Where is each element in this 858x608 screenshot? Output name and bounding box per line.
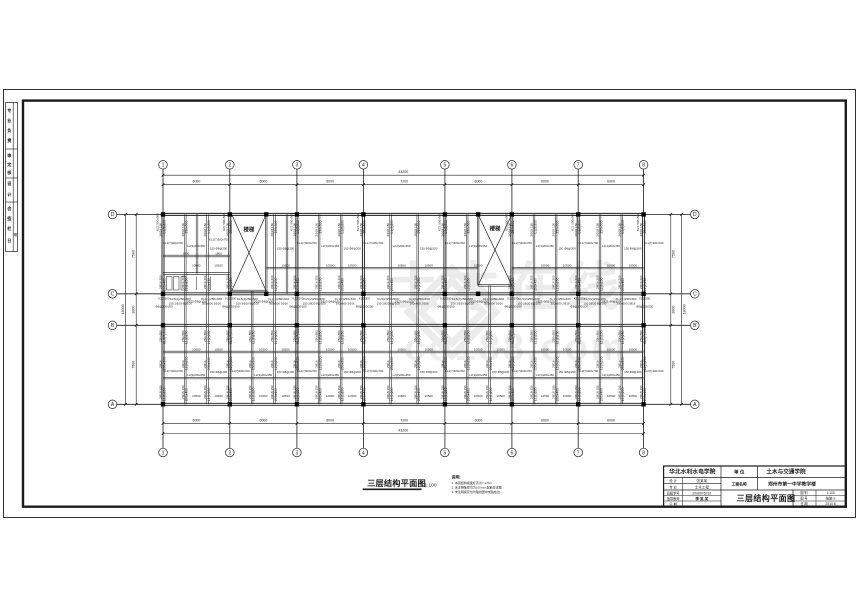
svg-text:Φ8@100/200: Φ8@100/200	[289, 305, 307, 309]
svg-text:10500: 10500	[425, 264, 434, 268]
svg-text:华北水利水电学院: 华北水利水电学院	[669, 468, 716, 476]
svg-text:2. 未注明板厚均为100mm,配筋见详图.: 2. 未注明板厚均为100mm,配筋见详图.	[452, 485, 503, 490]
svg-text:co188.com: co188.com	[404, 327, 627, 369]
svg-text:KL1(7)300x700: KL1(7)300x700	[578, 241, 598, 245]
svg-text:10500: 10500	[563, 394, 572, 398]
svg-text:250x550: 250x550	[596, 330, 600, 342]
svg-text:L2(3)200x450: L2(3)200x450	[469, 373, 487, 377]
svg-text:楼梯: 楼梯	[244, 226, 255, 234]
svg-text:200x450: 200x450	[621, 278, 625, 291]
svg-text:L1(1)200: L1(1)200	[533, 387, 537, 401]
svg-text:2Φ16 200: 2Φ16 200	[639, 275, 643, 289]
svg-text:2Φ18 150: 2Φ18 150	[159, 385, 163, 399]
svg-text:2Φ18 150: 2Φ18 150	[485, 385, 489, 399]
svg-text:2Φ18 150: 2Φ18 150	[386, 223, 390, 237]
svg-text:150 Φ8@200: 150 Φ8@200	[492, 370, 510, 374]
svg-text:KL3(7)300: KL3(7)300	[578, 328, 582, 344]
svg-text:KL2(7)300x700: KL2(7)300x700	[364, 369, 384, 373]
svg-text:L1(1)200: L1(1)200	[252, 387, 256, 401]
svg-text:Φ8@100/200: Φ8@100/200	[437, 305, 455, 309]
svg-text:7: 7	[577, 450, 580, 456]
svg-text:150 Φ8@200: 150 Φ8@200	[420, 370, 438, 374]
svg-text:250x550: 250x550	[225, 330, 229, 342]
svg-text:6: 6	[511, 163, 514, 169]
svg-text:2Φ18 150: 2Φ18 150	[617, 385, 621, 399]
svg-text:L1(2)200: L1(2)200	[533, 220, 537, 234]
svg-text:L2(3)200x450: L2(3)200x450	[536, 373, 554, 377]
svg-text:4: 4	[362, 450, 365, 456]
svg-text:250x550: 250x550	[359, 330, 363, 342]
svg-text:KL3(7)300: KL3(7)300	[444, 328, 448, 344]
svg-text:250x550: 250x550	[315, 330, 319, 342]
svg-text:250x500: 250x500	[643, 220, 647, 233]
svg-text:250x550: 250x550	[574, 330, 578, 342]
svg-text:KL3(7)300: KL3(7)300	[296, 328, 300, 344]
svg-text:D: D	[693, 212, 697, 218]
svg-text:班级学号: 班级学号	[667, 490, 680, 495]
svg-text:250x500: 250x500	[207, 357, 211, 370]
svg-text:土木工程: 土木工程	[695, 484, 710, 489]
svg-text:专: 专	[7, 107, 11, 114]
svg-text:2Φ16 200: 2Φ16 200	[225, 275, 229, 289]
svg-text:250x550: 250x550	[639, 330, 643, 342]
svg-text:2Φ16: 2Φ16	[315, 360, 319, 368]
svg-text:L1(2)250: L1(2)250	[555, 330, 559, 344]
svg-text:2Φ25 Φ8@100: 2Φ25 Φ8@100	[321, 299, 340, 303]
svg-text:2Φ18 150: 2Φ18 150	[270, 223, 274, 237]
svg-text:1. 本层结构板面标高为7.170m.: 1. 本层结构板面标高为7.170m.	[452, 480, 493, 485]
svg-text:10500: 10500	[326, 348, 335, 352]
svg-text:250x550: 250x550	[248, 330, 252, 342]
svg-text:150 Φ8@200: 150 Φ8@200	[344, 246, 362, 250]
svg-text:10500: 10500	[192, 348, 201, 352]
svg-text:10500: 10500	[348, 348, 357, 352]
svg-text:6000: 6000	[326, 418, 334, 422]
svg-text:6000: 6000	[541, 180, 549, 184]
svg-text:李 某 某: 李 某 某	[694, 496, 708, 501]
svg-text:1400: 1400	[183, 252, 190, 256]
svg-text:10500: 10500	[348, 264, 357, 268]
svg-text:2Φ16: 2Φ16	[248, 360, 252, 368]
svg-text:150 Φ8@200: 150 Φ8@200	[558, 246, 576, 250]
svg-text:L1(2)250: L1(2)250	[467, 330, 471, 344]
svg-text:KL2(7)300x700: KL2(7)300x700	[512, 369, 532, 373]
svg-text:10500: 10500	[607, 264, 616, 268]
svg-text:2Φ18 150: 2Φ18 150	[463, 223, 467, 237]
svg-text:2Φ16 200: 2Φ16 200	[337, 275, 341, 289]
svg-text:6000: 6000	[607, 180, 615, 184]
svg-text:7500: 7500	[672, 361, 676, 369]
svg-text:2Φ18 150: 2Φ18 150	[203, 223, 207, 237]
svg-text:L2(3)200x450: L2(3)200x450	[602, 244, 620, 248]
svg-text:10500: 10500	[397, 264, 406, 268]
svg-text:签: 签	[6, 215, 12, 222]
svg-text:250x550: 250x550	[441, 330, 445, 342]
svg-text:250x500: 250x500	[229, 220, 233, 233]
svg-text:5: 5	[444, 450, 447, 456]
svg-text:3000: 3000	[672, 306, 676, 314]
svg-text:2Φ16: 2Φ16	[552, 360, 556, 368]
svg-text:L2(2)250: L2(2)250	[467, 277, 471, 291]
svg-text:2Φ25 Φ8@100: 2Φ25 Φ8@100	[187, 299, 206, 303]
svg-text:10500: 10500	[629, 348, 638, 352]
svg-text:150 Φ8@200: 150 Φ8@200	[558, 370, 576, 374]
svg-text:250x500: 250x500	[390, 357, 394, 370]
svg-text:8: 8	[642, 163, 645, 169]
svg-text:L2(3)200: L2(3)200	[185, 356, 189, 370]
svg-text:2Φ16: 2Φ16	[203, 360, 207, 368]
svg-text:2Φ16: 2Φ16	[386, 360, 390, 368]
svg-text:200x400: 200x400	[229, 388, 233, 401]
svg-text:2Φ18 150: 2Φ18 150	[441, 385, 445, 399]
svg-text:10500: 10500	[281, 394, 290, 398]
svg-text:KZ1 500x500: KZ1 500x500	[571, 213, 575, 231]
svg-text:7: 7	[577, 163, 580, 169]
svg-text:L2(2)250: L2(2)250	[555, 277, 559, 291]
svg-text:KL1(7)300x700: KL1(7)300x700	[512, 241, 532, 245]
svg-text:250x550: 250x550	[337, 330, 341, 342]
svg-text:250x550: 250x550	[530, 330, 534, 342]
svg-text:150 Φ8@200: 150 Φ8@200	[624, 246, 642, 250]
svg-text:10500: 10500	[496, 348, 505, 352]
svg-text:KL3(7)300: KL3(7)300	[162, 328, 166, 344]
svg-text:审: 审	[7, 152, 11, 159]
svg-text:日 期: 日 期	[800, 501, 807, 506]
svg-text:18000: 18000	[682, 304, 686, 314]
svg-text:L2(2)250: L2(2)250	[511, 277, 515, 291]
svg-text:2: 2	[228, 450, 231, 456]
svg-text:L2(3)200: L2(3)200	[318, 356, 322, 370]
svg-text:L2(3)200x450: L2(3)200x450	[321, 373, 339, 377]
svg-text:KL1(7)300x700: KL1(7)300x700	[644, 241, 664, 245]
svg-text:6000: 6000	[475, 180, 483, 184]
svg-text:D: D	[111, 212, 115, 218]
svg-text:10500: 10500	[281, 348, 290, 352]
svg-text:250x550: 250x550	[552, 330, 556, 342]
svg-text:Φ8@100/200: Φ8@100/200	[504, 305, 522, 309]
svg-text:2Φ16 200: 2Φ16 200	[413, 275, 417, 289]
svg-text:2Φ16: 2Φ16	[413, 360, 417, 368]
svg-text:200x450: 200x450	[444, 278, 448, 291]
svg-text:1800: 1800	[215, 252, 222, 256]
svg-text:7200: 7200	[400, 180, 408, 184]
svg-text:工程名称: 工程名称	[732, 481, 747, 486]
svg-text:L2(2)250: L2(2)250	[185, 277, 189, 291]
svg-text:250x500: 250x500	[467, 220, 471, 233]
svg-text:2Φ18 150: 2Φ18 150	[552, 223, 556, 237]
svg-text:Φ8@100/200: Φ8@100/200	[155, 305, 173, 309]
svg-text:10500: 10500	[214, 394, 223, 398]
svg-text:L2(2)250: L2(2)250	[229, 277, 233, 291]
svg-text:2Φ18 150: 2Φ18 150	[530, 223, 534, 237]
svg-text:10500: 10500	[214, 264, 223, 268]
svg-text:KZ2 500: KZ2 500	[574, 296, 585, 300]
svg-text:KZ1 500x500: KZ1 500x500	[356, 213, 360, 231]
svg-text:10500: 10500	[541, 394, 550, 398]
svg-text:L1(2)250: L1(2)250	[318, 330, 322, 344]
svg-text:KZ2 500: KZ2 500	[639, 296, 650, 300]
svg-text:3000: 3000	[131, 306, 135, 314]
svg-text:三层结构平面图: 三层结构平面图	[737, 493, 796, 503]
svg-text:6000: 6000	[607, 418, 615, 422]
svg-text:250x550: 250x550	[463, 330, 467, 342]
svg-text:L2(3)200: L2(3)200	[599, 356, 603, 370]
svg-text:10500: 10500	[607, 394, 616, 398]
svg-text:2Φ16: 2Φ16	[293, 360, 297, 368]
svg-text:L2(3)200x450: L2(3)200x450	[393, 244, 411, 248]
svg-text:200x400: 200x400	[599, 388, 603, 401]
svg-text:7200: 7200	[400, 418, 408, 422]
svg-text:2Φ18 150: 2Φ18 150	[248, 385, 252, 399]
svg-text:10500: 10500	[397, 348, 406, 352]
svg-text:L1(2)250: L1(2)250	[417, 330, 421, 344]
svg-text:250x500: 250x500	[489, 357, 493, 370]
svg-text:2Φ16: 2Φ16	[508, 360, 512, 368]
svg-text:KL1(7)300x700: KL1(7)300x700	[297, 241, 317, 245]
svg-text:L1(1)200: L1(1)200	[162, 387, 166, 401]
svg-text:200x450: 200x450	[578, 278, 582, 291]
svg-text:250x550: 250x550	[508, 330, 512, 342]
svg-text:2Φ16: 2Φ16	[359, 360, 363, 368]
svg-text:日: 日	[7, 237, 11, 244]
svg-text:6000: 6000	[193, 180, 201, 184]
svg-text:三层结构平面图: 三层结构平面图	[367, 478, 426, 488]
svg-text:KL2(7)300x700: KL2(7)300x700	[578, 369, 598, 373]
svg-text:200x400: 200x400	[511, 388, 515, 401]
svg-text:张某某: 张某某	[696, 478, 707, 483]
svg-text:1: 1	[162, 450, 165, 456]
svg-text:150 Φ8@200: 150 Φ8@200	[210, 246, 228, 250]
svg-text:L1(1)200: L1(1)200	[341, 387, 345, 401]
svg-text:2Φ16: 2Φ16	[617, 360, 621, 368]
svg-text:2Φ16: 2Φ16	[270, 360, 274, 368]
svg-text:L2(3)200: L2(3)200	[643, 356, 647, 370]
svg-text:10500: 10500	[607, 348, 616, 352]
svg-text:200x400: 200x400	[274, 388, 278, 401]
svg-text:KL2(7)300x700: KL2(7)300x700	[297, 369, 317, 373]
svg-text:10500: 10500	[474, 394, 483, 398]
svg-text:2Φ16 200: 2Φ16 200	[315, 275, 319, 289]
svg-text:10500: 10500	[541, 264, 550, 268]
svg-text:L1(2)250: L1(2)250	[599, 330, 603, 344]
svg-text:L1(2)250: L1(2)250	[252, 330, 256, 344]
svg-text:1: 1	[162, 163, 165, 169]
svg-text:2Φ18 150: 2Φ18 150	[463, 385, 467, 399]
svg-text:2Φ16 200: 2Φ16 200	[359, 275, 363, 289]
svg-text:KZ1 500x500: KZ1 500x500	[222, 213, 226, 231]
svg-text:2Φ18 150: 2Φ18 150	[596, 385, 600, 399]
svg-text:200x400: 200x400	[467, 388, 471, 401]
svg-text:L2(3)200: L2(3)200	[555, 356, 559, 370]
svg-text:2Φ16: 2Φ16	[181, 360, 185, 368]
svg-text:2Φ25 Φ8@100: 2Φ25 Φ8@100	[254, 299, 273, 303]
svg-text:250x500: 250x500	[252, 357, 256, 370]
svg-text:2Φ18 150: 2Φ18 150	[315, 223, 319, 237]
svg-text:250x550: 250x550	[386, 330, 390, 342]
svg-text:KL3(7)300: KL3(7)300	[363, 328, 367, 344]
svg-text:10500: 10500	[563, 264, 572, 268]
svg-text:L1(1)200: L1(1)200	[390, 387, 394, 401]
svg-text:2Φ16 200: 2Φ16 200	[441, 275, 445, 289]
svg-text:L2(3)200: L2(3)200	[363, 356, 367, 370]
svg-text:2Φ18 150: 2Φ18 150	[574, 385, 578, 399]
svg-text:L1(2)250: L1(2)250	[341, 330, 345, 344]
svg-text:2Φ18 150: 2Φ18 150	[508, 385, 512, 399]
svg-text:L1(2)200: L1(2)200	[207, 220, 211, 234]
svg-text:250x550: 250x550	[293, 330, 297, 342]
svg-text:L1(2)200: L1(2)200	[390, 220, 394, 234]
svg-text:2Φ16 200: 2Φ16 200	[181, 275, 185, 289]
svg-text:2Φ18 150: 2Φ18 150	[413, 223, 417, 237]
svg-text:L1(2)250: L1(2)250	[489, 330, 493, 344]
svg-text:负: 负	[7, 127, 11, 134]
svg-text:日 期: 日 期	[669, 502, 677, 507]
svg-text:200x450: 200x450	[162, 278, 166, 291]
svg-text:5: 5	[444, 163, 447, 169]
svg-text:2Φ18 150: 2Φ18 150	[639, 385, 643, 399]
svg-text:2Φ16: 2Φ16	[159, 360, 163, 368]
svg-text:6000: 6000	[541, 418, 549, 422]
svg-text:2Φ16: 2Φ16	[225, 360, 229, 368]
svg-text:L2(3)200x450: L2(3)200x450	[602, 373, 620, 377]
svg-text:Φ8@100/200: Φ8@100/200	[571, 305, 589, 309]
svg-text:L1(2)200: L1(2)200	[162, 220, 166, 234]
svg-text:2Φ18 150: 2Φ18 150	[530, 385, 534, 399]
svg-text:L1(2)250: L1(2)250	[621, 330, 625, 344]
svg-text:KZ2 500: KZ2 500	[507, 296, 518, 300]
svg-text:KL1(7)300x700: KL1(7)300x700	[364, 241, 384, 245]
svg-text:图 号: 图 号	[800, 496, 807, 501]
svg-text:L2(2)250: L2(2)250	[318, 277, 322, 291]
svg-text:250x550: 250x550	[159, 330, 163, 342]
svg-text:150 Φ8@200: 150 Φ8@200	[420, 246, 438, 250]
svg-text:10500: 10500	[629, 264, 638, 268]
svg-text:3: 3	[296, 450, 299, 456]
svg-text:2Φ16: 2Φ16	[337, 360, 341, 368]
svg-text:250x500: 250x500	[533, 357, 537, 370]
svg-text:6: 6	[511, 450, 514, 456]
svg-text:2Φ16 200: 2Φ16 200	[508, 275, 512, 289]
svg-text:L2(3)200: L2(3)200	[229, 356, 233, 370]
svg-text:KL3(7)300: KL3(7)300	[511, 328, 515, 344]
svg-text:2Φ18 150: 2Φ18 150	[203, 385, 207, 399]
svg-text:2Φ16: 2Φ16	[485, 360, 489, 368]
svg-text:10500: 10500	[425, 394, 434, 398]
svg-text:6000: 6000	[260, 180, 268, 184]
svg-text:单 位: 单 位	[734, 469, 745, 476]
svg-text:L2(3)200x450: L2(3)200x450	[393, 373, 411, 377]
svg-text:2Φ18 150: 2Φ18 150	[359, 385, 363, 399]
svg-text:250x500: 250x500	[621, 357, 625, 370]
svg-text:2Φ18 150: 2Φ18 150	[386, 385, 390, 399]
svg-text:L1(2)250: L1(2)250	[390, 330, 394, 344]
svg-text:250x500: 250x500	[318, 220, 322, 233]
svg-text:200x450: 200x450	[207, 278, 211, 291]
svg-text:10500: 10500	[397, 394, 406, 398]
svg-text:L2(3)200: L2(3)200	[511, 356, 515, 370]
svg-text:KZ1 500x500: KZ1 500x500	[437, 213, 441, 231]
svg-text:L2(2)250: L2(2)250	[363, 277, 367, 291]
svg-text:KZ2 500: KZ2 500	[159, 296, 170, 300]
svg-text:2Φ18 150: 2Φ18 150	[596, 223, 600, 237]
svg-text:Φ8@100/200: Φ8@100/200	[356, 305, 374, 309]
svg-text:2Φ16: 2Φ16	[441, 360, 445, 368]
svg-text:定: 定	[6, 161, 12, 168]
svg-text:7500: 7500	[672, 250, 676, 258]
svg-text:200x450: 200x450	[390, 278, 394, 291]
svg-text:250x500: 250x500	[341, 357, 345, 370]
svg-text:18000: 18000	[121, 304, 125, 314]
svg-text:KL2(7)300x700: KL2(7)300x700	[445, 369, 465, 373]
svg-text:C: C	[111, 292, 115, 298]
svg-text:结施-3: 结施-3	[826, 496, 836, 501]
svg-text:L2(3)200x450: L2(3)200x450	[187, 244, 205, 248]
svg-text:L2(3)200: L2(3)200	[274, 356, 278, 370]
svg-text:楼梯: 楼梯	[490, 225, 501, 233]
svg-text:250x500: 250x500	[274, 220, 278, 233]
svg-text:250x500: 250x500	[555, 220, 559, 233]
svg-text:KZ2 500: KZ2 500	[225, 296, 236, 300]
svg-text:2Φ16 200: 2Φ16 200	[574, 275, 578, 289]
svg-text:250x550: 250x550	[203, 330, 207, 342]
svg-text:2Φ25 Φ8@100: 2Φ25 Φ8@100	[536, 299, 555, 303]
svg-text:150 Φ8@200: 150 Φ8@200	[277, 370, 295, 374]
svg-text:L2(3)200x450: L2(3)200x450	[469, 244, 487, 248]
svg-text:2Φ16 200: 2Φ16 200	[463, 275, 467, 289]
svg-text:KL2(7)300x700: KL2(7)300x700	[644, 369, 664, 373]
svg-text:L2(2)250: L2(2)250	[417, 277, 421, 291]
svg-text:2Φ16 200: 2Φ16 200	[203, 275, 207, 289]
svg-text:10500: 10500	[326, 264, 335, 268]
svg-text:专 业: 专 业	[669, 484, 677, 489]
svg-text:10500: 10500	[192, 394, 201, 398]
svg-text:L1(2)250: L1(2)250	[207, 330, 211, 344]
svg-text:2Φ16 200: 2Φ16 200	[293, 275, 297, 289]
svg-text:10500: 10500	[214, 348, 223, 352]
svg-text:2Φ18 150: 2Φ18 150	[337, 223, 341, 237]
svg-text:L1(2)250: L1(2)250	[274, 330, 278, 344]
svg-text:L1(1)200: L1(1)200	[296, 387, 300, 401]
svg-text:10500: 10500	[496, 394, 505, 398]
svg-text:10500: 10500	[259, 348, 268, 352]
svg-text:150 Φ8@200: 150 Φ8@200	[344, 370, 362, 374]
svg-text:L1(1)200: L1(1)200	[444, 387, 448, 401]
svg-text:200x450: 200x450	[341, 278, 345, 291]
svg-text:200x450: 200x450	[533, 278, 537, 291]
svg-text:2: 2	[228, 163, 231, 169]
svg-text:2Φ18 150: 2Φ18 150	[413, 385, 417, 399]
svg-text:2010.6: 2010.6	[825, 502, 835, 506]
svg-text:200x400: 200x400	[417, 388, 421, 401]
svg-text:250x500: 250x500	[417, 220, 421, 233]
svg-text:3. 未注明梁定位均轴线居中或贴柱边.: 3. 未注明梁定位均轴线居中或贴柱边.	[452, 489, 501, 494]
svg-text:L1(1)200: L1(1)200	[207, 387, 211, 401]
svg-text:Φ8@100/200: Φ8@100/200	[636, 305, 654, 309]
svg-text:郑州市第一中学教学楼: 郑州市第一中学教学楼	[768, 481, 816, 488]
svg-text:KL2(7)300x700: KL2(7)300x700	[230, 369, 250, 373]
svg-text:2Φ18 150: 2Φ18 150	[181, 385, 185, 399]
svg-text:L1(2)200: L1(2)200	[444, 220, 448, 234]
svg-text:200x400: 200x400	[185, 388, 189, 401]
svg-text:200x400: 200x400	[555, 388, 559, 401]
svg-text:2Φ18 150: 2Φ18 150	[270, 385, 274, 399]
svg-text:2Φ25 Φ8@100: 2Φ25 Φ8@100	[469, 299, 488, 303]
svg-text:2Φ16 200: 2Φ16 200	[596, 275, 600, 289]
svg-text:设 计: 设 计	[669, 478, 677, 483]
svg-text:KZ1 500x500: KZ1 500x500	[155, 213, 159, 231]
svg-text:2Φ16 200: 2Φ16 200	[530, 275, 534, 289]
svg-text:KL3(7)300: KL3(7)300	[229, 328, 233, 344]
